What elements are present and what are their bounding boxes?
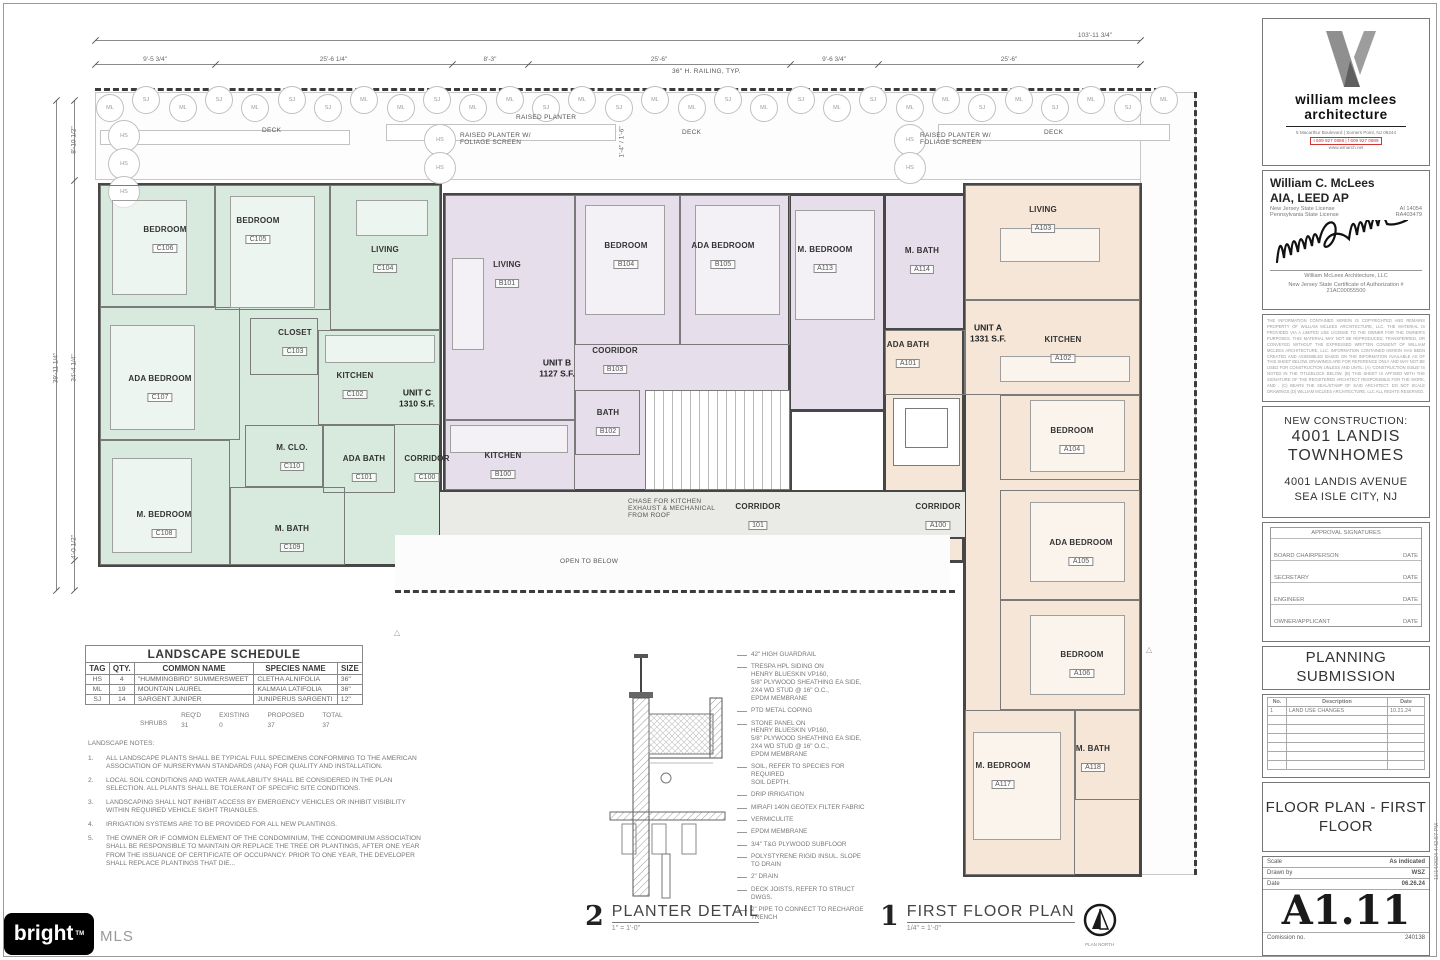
room-label: CORRIDOR101 (735, 496, 780, 532)
dim-line (56, 100, 57, 590)
drawing-sheet: BEDROOMC106BEDROOMC105LIVINGC104CLOSETC1… (0, 0, 1440, 960)
kitchen-counter-icon (325, 335, 435, 363)
landscape-note: 3.LANDSCAPING SHALL NOT INHIBIT ACCESS B… (88, 799, 424, 816)
planter-callouts: 42" HIGH GUARDRAILTRESPA HPL SIDING ON H… (737, 651, 877, 922)
tree-icon: SJ (205, 86, 233, 114)
tree-icon: SJ (787, 86, 815, 114)
scale-label: Scale (1267, 859, 1282, 865)
rev-col-desc: Description (1287, 698, 1388, 707)
planter-callout: MIRAFI 140N GEOTEX FILTER FABRIC (737, 804, 877, 812)
revision-row-empty (1268, 761, 1425, 770)
planter-callout: EPDM MEMBRANE (737, 828, 877, 836)
legal-box: THE INFORMATION CONTAINED HEREIN IS COPY… (1262, 314, 1430, 402)
north-arrow-icon (1083, 903, 1117, 937)
tree-icon: ML (350, 86, 378, 114)
planter-callout: 42" HIGH GUARDRAIL (737, 651, 877, 659)
tree-icon: SJ (1114, 94, 1142, 122)
logo-box: william mclees architecture 5 Macarthur … (1262, 18, 1430, 166)
commission-value: 240138 (1405, 935, 1425, 941)
approval-row: BOARD CHAIRPERSONDATE (1271, 539, 1421, 561)
summary-col: TOTAL37 (322, 712, 342, 729)
tree-icon: ML (750, 94, 778, 122)
plan-scale: 1/4" = 1'-0" (907, 925, 1075, 932)
room-label: ADA BATHC101 (343, 448, 385, 484)
dim-text: 8'-3" (484, 56, 497, 63)
drawnby-value: WSZ (1412, 870, 1425, 876)
tree-icon: ML (1005, 86, 1033, 114)
revision-row-empty (1268, 752, 1425, 761)
planter-dim: 1'-4" / 1'-6" (619, 126, 626, 157)
firm-name: william mclees architecture (1263, 93, 1429, 123)
schedule-row: SJ14SARGENT JUNIPERJUNIPERUS SARGENTI12" (86, 695, 363, 705)
dim-text: 8'-10 1/2" (71, 126, 78, 153)
revision-row-empty (1268, 716, 1425, 725)
stair (645, 390, 790, 490)
scale-value: As indicated (1389, 859, 1425, 865)
revisions-box: No. Description Date 1LAND USE CHANGES10… (1262, 694, 1430, 778)
tree-icon: SJ (859, 86, 887, 114)
planter-detail-drawing (600, 652, 735, 902)
dim-text: 103'-11 3/4" (1078, 32, 1112, 39)
planter-callout: PTD METAL COPING (737, 707, 877, 715)
tree-icon: SJ (714, 86, 742, 114)
deck-edge-dashed (95, 88, 1160, 91)
project-address: 4001 LANDIS AVENUE SEA ISLE CITY, NJ (1263, 475, 1429, 504)
approvals-box: APPROVAL SIGNATURES BOARD CHAIRPERSONDAT… (1262, 522, 1430, 642)
dim-text: 25'-6 1/4" (320, 56, 347, 63)
room-label: M. BATHA114 (905, 240, 939, 276)
tree-icon: ML (387, 94, 415, 122)
revision-row: 1LAND USE CHANGES10.21.24 (1268, 707, 1425, 716)
project-name: 4001 LANDIS TOWNHOMES (1263, 427, 1429, 465)
dim-text: 39'-11 1/4" (53, 353, 60, 384)
dim-text: 4'-0 1/2" (71, 535, 78, 559)
planter-callout: TRESPA HPL SIDING ON HENRY BLUESKIN VP16… (737, 663, 877, 702)
submission-label: PLANNING SUBMISSION (1263, 649, 1429, 687)
room-label: M. BEDROOMA117 (976, 755, 1031, 791)
right-deck (1140, 92, 1196, 875)
plan-number: 1 (880, 903, 899, 930)
summary-col: PROPOSED37 (267, 712, 304, 729)
planter-callout: SOIL, REFER TO SPECIES FOR REQUIRED SOIL… (737, 763, 877, 787)
room-label: BEDROOMB104 (604, 235, 647, 271)
unit-label: UNIT C1310 S.F. (399, 387, 435, 408)
submission-box: PLANNING SUBMISSION (1262, 646, 1430, 690)
dim-tick (53, 587, 60, 594)
project-kind: NEW CONSTRUCTION: (1263, 415, 1429, 427)
summary-col: REQ'D31 (181, 712, 201, 729)
landscape-notes: LANDSCAPE NOTES: 1.ALL LANDSCAPE PLANTS … (88, 740, 424, 874)
deck-label: DECK (682, 129, 701, 136)
planter-callout: DRIP IRRIGATION (737, 791, 877, 799)
tree-icon: SJ (132, 86, 160, 114)
info-box: ScaleAs indicated Drawn byWSZ Date06.26.… (1262, 856, 1430, 956)
dim-tick (1137, 37, 1144, 44)
chase-note: CHASE FOR KITCHEN EXHAUST & MECHANICAL F… (628, 498, 715, 519)
room-label: LIVINGA103 (1029, 199, 1057, 235)
room-label: LIVINGC104 (371, 239, 399, 275)
summary-col: EXISTING0 (219, 712, 249, 729)
tree-icon: ML (241, 94, 269, 122)
schedule-header: SIZE (337, 663, 362, 675)
plan-north-label: PLAN NORTH (1083, 942, 1117, 947)
elevator-cab (905, 408, 948, 448)
room-label: BEDROOMC106 (143, 219, 186, 255)
tree-icon: ML (896, 94, 924, 122)
deck-edge-dashed (1194, 92, 1197, 875)
unit-label: UNIT A1331 S.F. (970, 322, 1006, 343)
tree-icon: ML (932, 86, 960, 114)
deck-label: DECK (1044, 129, 1063, 136)
room-label: M. CLO.C110 (276, 437, 308, 473)
tree-icon: ML (96, 94, 124, 122)
summary-row-label: SHRUBS (140, 720, 167, 729)
planter-callout: POLYSTYRENE RIGID INSUL. SLOPE TO DRAIN (737, 853, 877, 869)
rev-col-no: No. (1268, 698, 1287, 707)
room-label: ADA BATHA101 (887, 334, 929, 370)
room-label: CORRIDORC100 (404, 448, 449, 484)
dim-line (74, 100, 75, 590)
firm-llc: William McLees Architecture, LLC (1270, 270, 1422, 279)
detail-scale: 1" = 1'-0" (612, 925, 759, 932)
room-label: KITCHENB100 (485, 445, 522, 481)
dim-text: 25'-6" (1001, 56, 1018, 63)
dim-text: 9'-6 3/4" (822, 56, 846, 63)
open-below-label: OPEN TO BELOW (560, 558, 618, 565)
room-label: M. BEDROOMA113 (798, 239, 853, 275)
sheet-title-box: FLOOR PLAN - FIRST FLOOR (1262, 782, 1430, 852)
unit-label: UNIT B1127 S.F. (539, 357, 574, 378)
revision-row-empty (1268, 725, 1425, 734)
dim-text: 34'-4 1/4" (71, 354, 78, 381)
project-box: NEW CONSTRUCTION: 4001 LANDIS TOWNHOMES … (1262, 406, 1430, 518)
landscape-note: 2.LOCAL SOIL CONDITIONS AND WATER AVAILA… (88, 777, 424, 794)
tree-icon: SJ (314, 94, 342, 122)
planter-callout: VERMICULITE (737, 816, 877, 824)
room-label: CLOSETC103 (278, 322, 312, 358)
dim-line (95, 40, 1140, 41)
room-label: ADA BEDROOMA105 (1049, 532, 1112, 568)
tree-icon: ML (1077, 86, 1105, 114)
tree-icon: SJ (968, 94, 996, 122)
room-label: KITCHENC102 (337, 365, 374, 401)
tree-icon: HS (424, 152, 456, 184)
notes-title: LANDSCAPE NOTES: (88, 740, 424, 749)
architect-box: William C. McLees AIA, LEED AP New Jerse… (1262, 170, 1430, 310)
legal-text: THE INFORMATION CONTAINED HEREIN IS COPY… (1263, 315, 1429, 398)
schedule-title: LANDSCAPE SCHEDULE (86, 646, 363, 663)
planter-callout: STONE PANEL ON HENRY BLUESKIN VP160, 5/8… (737, 720, 877, 759)
tree-icon: ML (459, 94, 487, 122)
plan-title-text: FIRST FLOOR PLAN (907, 903, 1075, 923)
room-label: ADA BEDROOMB105 (691, 235, 754, 271)
room-label: ADA BEDROOMC107 (128, 368, 191, 404)
raised-planter-screen-label: RAISED PLANTER W/ FOLIAGE SCREEN (920, 132, 1000, 146)
revision-delta-icon: △ (1146, 645, 1152, 654)
print-timestamp: 11/14/2024 4:42:57 PM (1434, 823, 1440, 880)
tree-icon: ML (568, 86, 596, 114)
dim-text: 25'-6" (651, 56, 668, 63)
room-label: BEDROOMA106 (1060, 644, 1103, 680)
dim-line (95, 64, 1140, 65)
room-label: BEDROOMC105 (236, 210, 279, 246)
firm-contact: 5 Macarthur Boulevard | Somers Point, NJ… (1263, 130, 1429, 153)
room-label: CORRIDORA100 (915, 496, 960, 532)
landscape-note: 1.ALL LANDSCAPE PLANTS SHALL BE TYPICAL … (88, 755, 424, 772)
schedule-header: COMMON NAME (134, 663, 253, 675)
date-label: Date (1267, 881, 1280, 887)
sofa-icon (356, 200, 428, 236)
deck-label: DECK (262, 127, 281, 134)
commission-label: Comission no. (1267, 935, 1305, 941)
license-number: RA403479 (1396, 212, 1422, 218)
certificate: New Jersey State Certificate of Authoriz… (1270, 282, 1422, 294)
schedule-header: SPECIES NAME (254, 663, 337, 675)
schedule-header: QTY. (109, 663, 134, 675)
raised-planter-label: RAISED PLANTER (516, 114, 576, 121)
room-label: BEDROOMA104 (1050, 420, 1093, 456)
mls-label: MLS (100, 928, 134, 945)
schedule-row: HS4"HUMMINGBIRD" SUMMERSWEETCLETHA ALNIF… (86, 675, 363, 685)
room-label: M. BEDROOMC108 (137, 504, 192, 540)
landscape-schedule: LANDSCAPE SCHEDULE TAGQTY.COMMON NAMESPE… (85, 645, 363, 705)
schedule-summary: SHRUBS REQ'D31EXISTING0PROPOSED37TOTAL37 (140, 712, 343, 729)
room-label: COORIDORB103 (592, 340, 638, 376)
tree-icon: HS (894, 152, 926, 184)
tree-icon: ML (169, 94, 197, 122)
planter-callout: 2" DRAIN (737, 873, 877, 881)
tree-icon: ML (1150, 86, 1178, 114)
room-label: M. BATHA118 (1076, 738, 1110, 774)
revision-row-empty (1268, 743, 1425, 752)
planter-callout: DECK JOISTS, REFER TO STRUCT DWGS. (737, 886, 877, 902)
approval-row: OWNER/APPLICANTDATE (1271, 605, 1421, 626)
tree-icon: ML (496, 86, 524, 114)
tree-icon: ML (678, 94, 706, 122)
open-below-dashed (395, 590, 955, 593)
approval-row: ENGINEERDATE (1271, 583, 1421, 605)
tree-icon: SJ (278, 86, 306, 114)
sheet-title: FLOOR PLAN - FIRST FLOOR (1263, 798, 1429, 837)
revision-row-empty (1268, 734, 1425, 743)
railing-note: 36" H. RAILING, TYP. (672, 68, 741, 75)
bright-mls-logo: brightTM (4, 913, 94, 955)
drawnby-label: Drawn by (1267, 870, 1292, 876)
raised-planter-screen-label: RAISED PLANTER W/ FOLIAGE SCREEN (460, 132, 540, 146)
first-floor-plan-title: 1 FIRST FLOOR PLAN 1/4" = 1'-0" PLAN NOR… (880, 903, 1117, 947)
tree-icon: SJ (605, 94, 633, 122)
revision-delta-icon: △ (394, 628, 400, 637)
planter-callout: 3/4" T&G PLYWOOD SUBFLOOR (737, 841, 877, 849)
room-label: KITCHENA102 (1045, 329, 1082, 365)
dim-tick (1137, 61, 1144, 68)
landscape-note: 4.IRRIGATION SYSTEMS ARE TO BE PROVIDED … (88, 821, 424, 830)
approvals-title: APPROVAL SIGNATURES (1271, 528, 1421, 539)
room-label: LIVINGB101 (493, 254, 521, 290)
sofa-icon (452, 258, 484, 350)
schedule-row: ML19MOUNTAIN LAURELKALMAIA LATIFOLIA36" (86, 685, 363, 695)
room-label: M. BATHC109 (275, 518, 309, 554)
room-label: BATHB102 (596, 402, 620, 438)
approval-row: SECRETARYDATE (1271, 561, 1421, 583)
schedule-header-row: TAGQTY.COMMON NAMESPECIES NAMESIZE (86, 663, 363, 675)
firm-logo-icon (1314, 27, 1378, 91)
landscape-note: 5.THE OWNER OR IF COMMON ELEMENT OF THE … (88, 835, 424, 869)
architect-signature (1271, 220, 1421, 268)
tree-icon: SJ (423, 86, 451, 114)
rev-col-date: Date (1388, 698, 1425, 707)
sheet-number: A1.11 (1263, 890, 1429, 932)
schedule-header: TAG (86, 663, 110, 675)
detail-number: 2 (585, 903, 604, 930)
dim-tick (71, 587, 78, 594)
tree-icon: ML (641, 86, 669, 114)
detail-title-text: PLANTER DETAIL (612, 903, 759, 923)
planter-detail-title: 2 PLANTER DETAIL 1" = 1'-0" (585, 903, 759, 932)
license-label: Pennsylvania State License (1270, 212, 1339, 218)
tree-icon: ML (823, 94, 851, 122)
dim-text: 9'-5 3/4" (143, 56, 167, 63)
open-to-below-area (395, 535, 950, 590)
architect-name: William C. McLees AIA, LEED AP (1270, 176, 1422, 206)
tree-icon: SJ (1041, 94, 1069, 122)
